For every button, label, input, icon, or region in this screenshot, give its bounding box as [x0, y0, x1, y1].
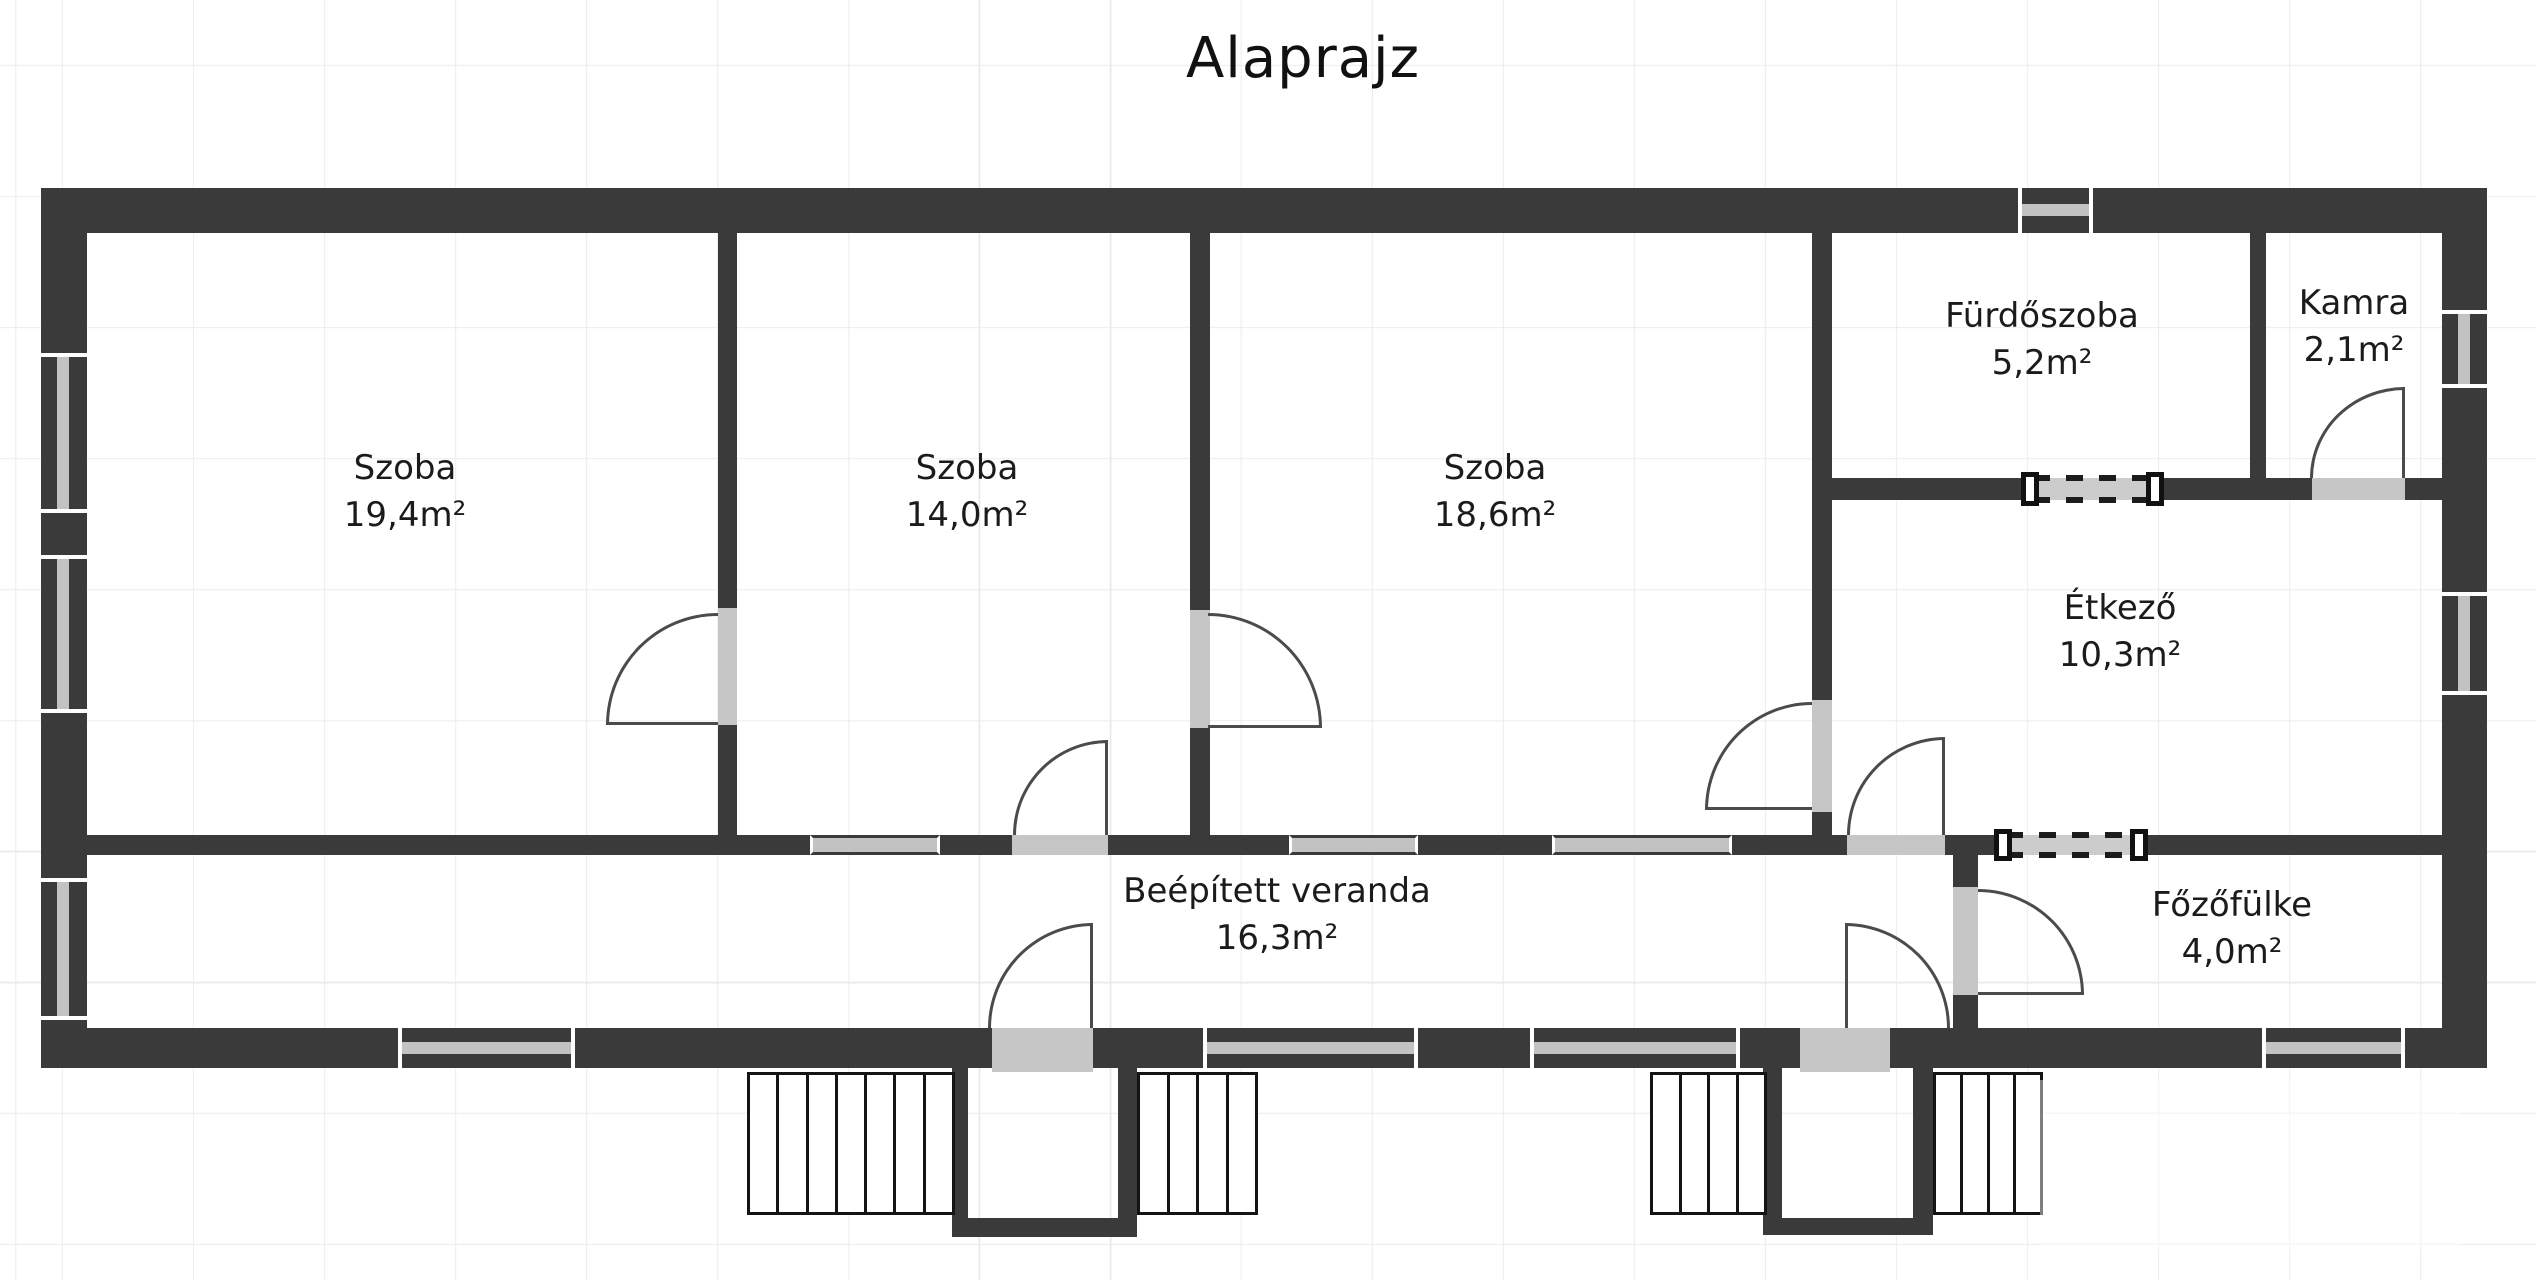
door-arc-szoba2-veranda	[1013, 740, 1108, 835]
watermark-overlay	[2040, 1080, 2460, 1250]
wall-furdoszoba-kamra	[2250, 233, 2266, 478]
window	[2442, 592, 2487, 695]
stair-tread	[926, 1075, 952, 1212]
window-glass	[57, 882, 69, 1016]
dash-line	[2006, 832, 2136, 838]
wall-szoba1-szoba2	[718, 233, 737, 835]
door-opening	[1847, 835, 1945, 855]
room-area: 14,0m²	[906, 492, 1028, 539]
window	[2262, 1028, 2405, 1068]
window	[1552, 835, 1732, 855]
stair-tread	[779, 1075, 808, 1212]
room-area: 2,1m²	[2299, 327, 2409, 374]
stair-tread	[809, 1075, 838, 1212]
window	[398, 1028, 575, 1068]
window-glass	[57, 559, 69, 709]
porch-left-wall-bottom	[952, 1218, 1137, 1237]
floor-plan-canvas: Alaprajz	[0, 0, 2536, 1280]
room-label-etkezo: Étkező 10,3m²	[2059, 585, 2181, 679]
stair-tread	[867, 1075, 896, 1212]
stair-tread	[750, 1075, 779, 1212]
cased-opening-dashed	[2027, 478, 2158, 500]
wall-outer-top	[41, 188, 2487, 233]
cased-opening-dashed	[2000, 835, 2142, 855]
window-glass	[2458, 596, 2470, 691]
window-glass	[2022, 204, 2089, 216]
room-name: Szoba	[906, 445, 1028, 492]
room-label-fozofulke: Főzőfülke 4,0m²	[2152, 882, 2312, 976]
stair-tread	[838, 1075, 867, 1212]
room-name: Beépített veranda	[1123, 868, 1431, 915]
stair-tread	[2016, 1075, 2040, 1212]
room-name: Szoba	[344, 445, 466, 492]
window-glass	[1207, 1042, 1414, 1054]
door-arc-fozofulke	[1978, 889, 2084, 995]
room-area: 19,4m²	[344, 492, 466, 539]
window	[41, 555, 87, 713]
stair-tread	[896, 1075, 925, 1212]
stair-tread	[1990, 1075, 2017, 1212]
window	[2442, 310, 2487, 388]
room-name: Szoba	[1434, 445, 1556, 492]
door-arc-etkezo-veranda	[1847, 737, 1945, 835]
stair-tread	[1199, 1075, 1229, 1212]
door-arc-veranda-exit-left	[988, 923, 1093, 1028]
stair-tread	[1936, 1075, 1963, 1212]
window	[1289, 835, 1418, 855]
room-label-kamra: Kamra 2,1m²	[2299, 280, 2409, 374]
door-opening	[2312, 478, 2405, 500]
room-area: 10,3m²	[2059, 632, 2181, 679]
opening-cap	[2130, 829, 2148, 861]
room-label-szoba-2: Szoba 14,0m²	[906, 445, 1028, 539]
porch-left-wall-right	[1118, 1068, 1137, 1218]
room-label-szoba-3: Szoba 18,6m²	[1434, 445, 1556, 539]
opening-cap	[2021, 472, 2039, 506]
stairs-right-inner	[1933, 1072, 2043, 1215]
opening-cap	[2146, 472, 2164, 506]
stair-tread	[1963, 1075, 1990, 1212]
door-opening	[1190, 610, 1210, 728]
window	[1203, 1028, 1418, 1068]
window-glass	[2266, 1042, 2401, 1054]
door-arc-szoba1-szoba2	[606, 613, 718, 725]
stairs-right-outer	[1650, 1072, 1767, 1215]
window-glass	[2458, 314, 2470, 384]
stair-tread	[1739, 1075, 1765, 1212]
window	[810, 835, 940, 855]
door-arc-szoba3-etkezo	[1705, 702, 1812, 810]
room-name: Étkező	[2059, 585, 2181, 632]
page-title: Alaprajz	[1186, 26, 1420, 91]
door-opening	[1800, 1028, 1890, 1072]
room-label-furdoszoba: Fürdőszoba 5,2m²	[1945, 293, 2139, 387]
dash-line	[2006, 852, 2136, 858]
door-opening	[1012, 835, 1108, 855]
room-label-szoba-1: Szoba 19,4m²	[344, 445, 466, 539]
window	[41, 878, 87, 1020]
door-arc-veranda-exit-right	[1845, 923, 1950, 1028]
window-glass	[402, 1042, 571, 1054]
window	[2018, 188, 2093, 233]
door-arc-szoba2-szoba3	[1208, 613, 1322, 728]
stair-tread	[1170, 1075, 1200, 1212]
dash-line	[2033, 475, 2152, 481]
room-area: 4,0m²	[2152, 929, 2312, 976]
window	[41, 353, 87, 513]
stair-tread	[1140, 1075, 1170, 1212]
room-name: Kamra	[2299, 280, 2409, 327]
stairs-left-outer	[747, 1072, 955, 1215]
window-glass	[1534, 1042, 1736, 1054]
room-name: Főzőfülke	[2152, 882, 2312, 929]
room-area: 16,3m²	[1123, 915, 1431, 962]
porch-right-wall-right	[1913, 1068, 1933, 1218]
stair-tread	[1229, 1075, 1256, 1212]
wall-szoba2-szoba3	[1190, 233, 1210, 835]
door-opening	[1812, 700, 1832, 812]
room-name: Fürdőszoba	[1945, 293, 2139, 340]
window	[1530, 1028, 1740, 1068]
stair-tread	[1710, 1075, 1739, 1212]
porch-right-wall-bottom	[1763, 1218, 1933, 1235]
stairs-left-inner	[1137, 1072, 1258, 1215]
door-arc-kamra	[2310, 387, 2405, 478]
stair-tread	[1653, 1075, 1682, 1212]
door-opening	[718, 608, 737, 725]
door-opening	[1953, 887, 1978, 995]
room-area: 5,2m²	[1945, 340, 2139, 387]
stair-tread	[1682, 1075, 1711, 1212]
window-glass	[57, 357, 69, 509]
room-area: 18,6m²	[1434, 492, 1556, 539]
door-opening	[992, 1028, 1093, 1072]
room-label-veranda: Beépített veranda 16,3m²	[1123, 868, 1431, 962]
opening-cap	[1994, 829, 2012, 861]
dash-line	[2033, 497, 2152, 503]
